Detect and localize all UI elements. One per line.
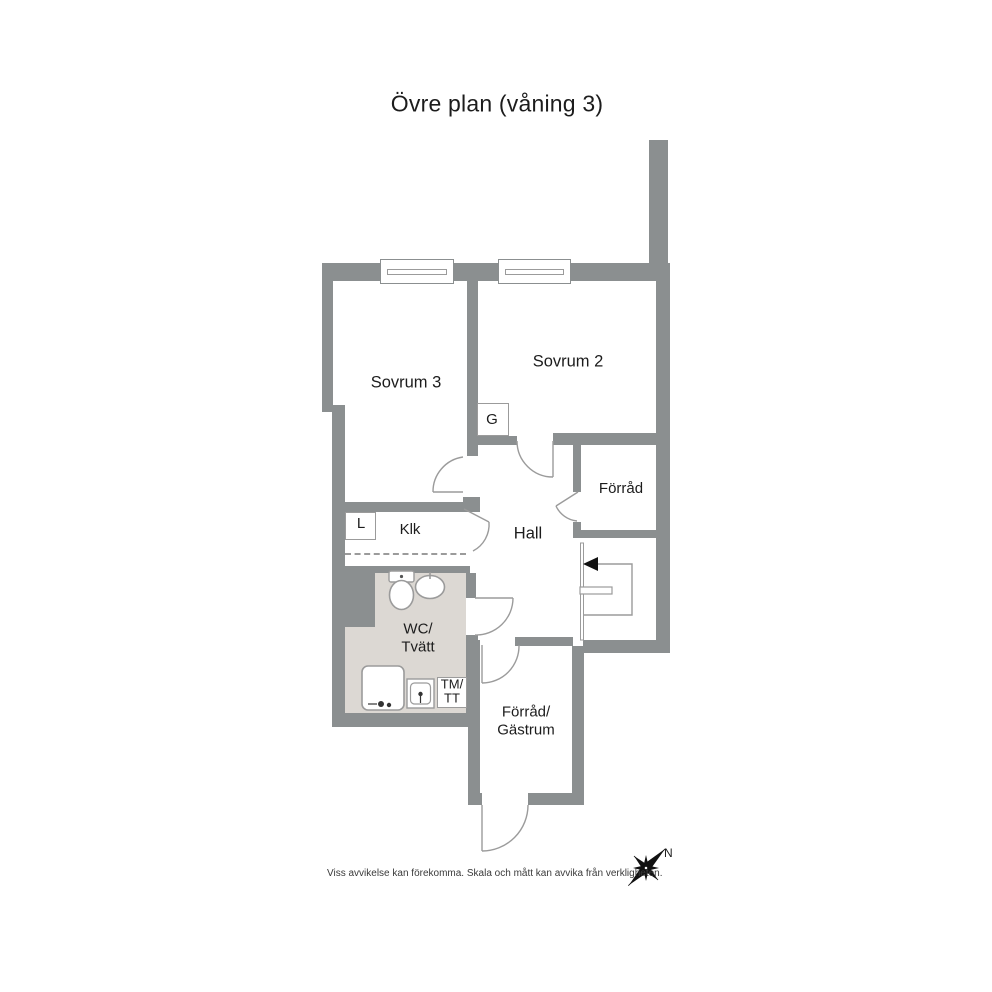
room-label-fg-line1: Förråd/ (497, 703, 555, 721)
label-tm-line1: TM/ (441, 678, 463, 692)
compass-north-label: N (664, 846, 673, 860)
room-label-sovrum2: Sovrum 2 (533, 352, 604, 371)
disclaimer-text: Viss avvikelse kan förekomma. Skala och … (327, 868, 663, 879)
stairs-direction-arrow (583, 557, 598, 571)
door-sovrum2 (517, 441, 553, 477)
room-label-forrad-gastrum: Förråd/ Gästrum (497, 703, 555, 738)
room-label-sovrum3: Sovrum 3 (371, 373, 442, 392)
label-tm-line2: TT (441, 692, 463, 706)
door-sovrum3 (433, 457, 463, 492)
room-label-wc-line1: WC/ (401, 620, 434, 638)
washbasin-upper (416, 572, 445, 599)
door-forrad (556, 492, 578, 521)
room-label-hall: Hall (514, 524, 542, 543)
door-gastrum-top (482, 645, 519, 683)
toilet (389, 571, 414, 610)
stairs (580, 543, 632, 640)
room-label-wc-tvatt: WC/ Tvätt (401, 620, 434, 655)
floor-plan: Övre plan (våning 3) (0, 0, 992, 992)
door-klk (464, 509, 489, 551)
room-label-forrad: Förråd (599, 480, 643, 498)
room-label-wc-line2: Tvätt (401, 638, 434, 656)
door-gastrum-bottom (482, 805, 528, 851)
door-wc-tvatt (475, 598, 513, 635)
room-label-fg-line2: Gästrum (497, 721, 555, 739)
label-tm-tt: TM/ TT (441, 678, 463, 707)
linework-layer (0, 0, 992, 992)
closet-label-g: G (486, 411, 498, 429)
closet-label-l: L (357, 515, 365, 533)
room-label-klk: Klk (400, 521, 421, 539)
shower (362, 666, 404, 710)
washbasin-lower (407, 679, 434, 708)
